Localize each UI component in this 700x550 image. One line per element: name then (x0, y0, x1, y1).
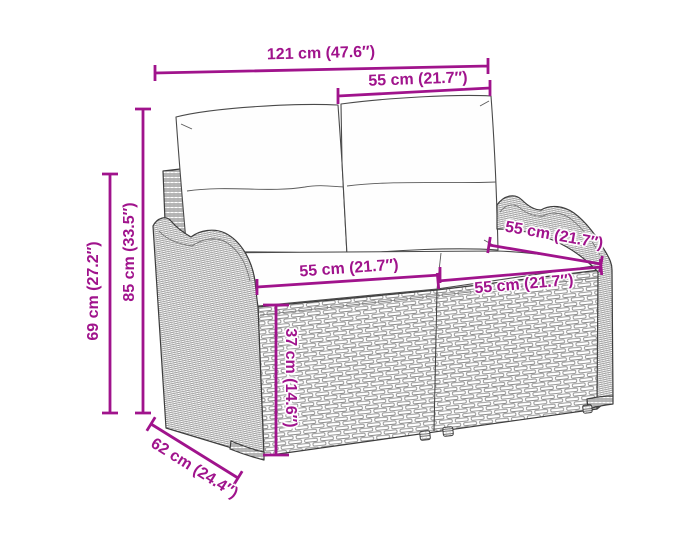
dimension-side-height-line (102, 174, 118, 413)
dim-label-total-height: 85 cm (33.5″) (122, 202, 138, 301)
dim-label-seat-height: 37 cm (14.6″) (282, 328, 298, 427)
dim-label-total-width: 121 cm (47.6″) (267, 45, 376, 64)
product-dimension-diagram: 121 cm (47.6″) 55 cm (21.7″) 85 cm (33.5… (0, 0, 700, 550)
back-cushions (176, 95, 498, 255)
dim-label-side-height: 69 cm (27.2″) (86, 241, 102, 340)
